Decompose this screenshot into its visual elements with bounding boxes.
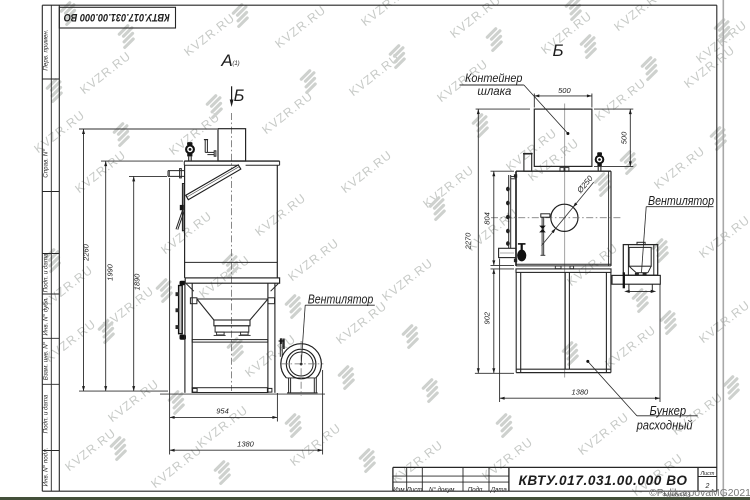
svg-text:Справ. N°: Справ. N° bbox=[43, 149, 50, 178]
svg-text:Изм.: Изм. bbox=[393, 487, 406, 494]
svg-text:804: 804 bbox=[483, 212, 492, 225]
svg-text:500: 500 bbox=[620, 131, 629, 144]
svg-text:N° докум.: N° докум. bbox=[429, 487, 456, 494]
svg-text:КВТУ.017.031.00.000 ВО: КВТУ.017.031.00.000 ВО bbox=[63, 11, 169, 23]
svg-text:500: 500 bbox=[558, 86, 571, 95]
svg-text:Подп. и дата: Подп. и дата bbox=[43, 253, 50, 292]
svg-text:(1): (1) bbox=[232, 61, 239, 67]
svg-text:Лист: Лист bbox=[406, 487, 423, 494]
svg-text:Формат А3: Формат А3 bbox=[662, 493, 690, 499]
svg-text:Подп. и дата: Подп. и дата bbox=[43, 394, 50, 433]
svg-text:Вентилятор: Вентилятор bbox=[308, 293, 374, 307]
svg-text:Контейнер: Контейнер bbox=[465, 72, 523, 85]
svg-text:Подп.: Подп. bbox=[468, 487, 484, 494]
svg-text:Перв. примен.: Перв. примен. bbox=[43, 29, 50, 70]
svg-text:Дата: Дата bbox=[490, 487, 508, 494]
svg-text:902: 902 bbox=[483, 311, 492, 324]
svg-text:А: А bbox=[220, 51, 232, 70]
svg-text:1990: 1990 bbox=[106, 263, 115, 281]
svg-text:1380: 1380 bbox=[237, 439, 255, 448]
svg-text:1890: 1890 bbox=[133, 273, 142, 291]
svg-text:расходный: расходный bbox=[636, 418, 693, 433]
svg-text:Б: Б bbox=[552, 41, 563, 60]
svg-text:Инв. N° подл.: Инв. N° подл. bbox=[43, 448, 50, 487]
svg-text:954: 954 bbox=[216, 407, 229, 416]
svg-text:Инв. N° дубл.: Инв. N° дубл. bbox=[43, 297, 50, 335]
svg-text:Лист: Лист bbox=[699, 471, 714, 477]
svg-text:2260: 2260 bbox=[82, 243, 91, 262]
svg-text:Вентилятор: Вентилятор bbox=[648, 194, 714, 208]
svg-text:шлака: шлака bbox=[477, 85, 512, 98]
svg-text:2270: 2270 bbox=[464, 232, 473, 251]
svg-text:КВТУ.017.031.00.000 ВО: КВТУ.017.031.00.000 ВО bbox=[518, 473, 687, 488]
svg-text:1380: 1380 bbox=[572, 387, 590, 396]
svg-text:Взам. инв. N°: Взам. инв. N° bbox=[43, 341, 50, 380]
svg-text:Б: Б bbox=[234, 87, 245, 105]
